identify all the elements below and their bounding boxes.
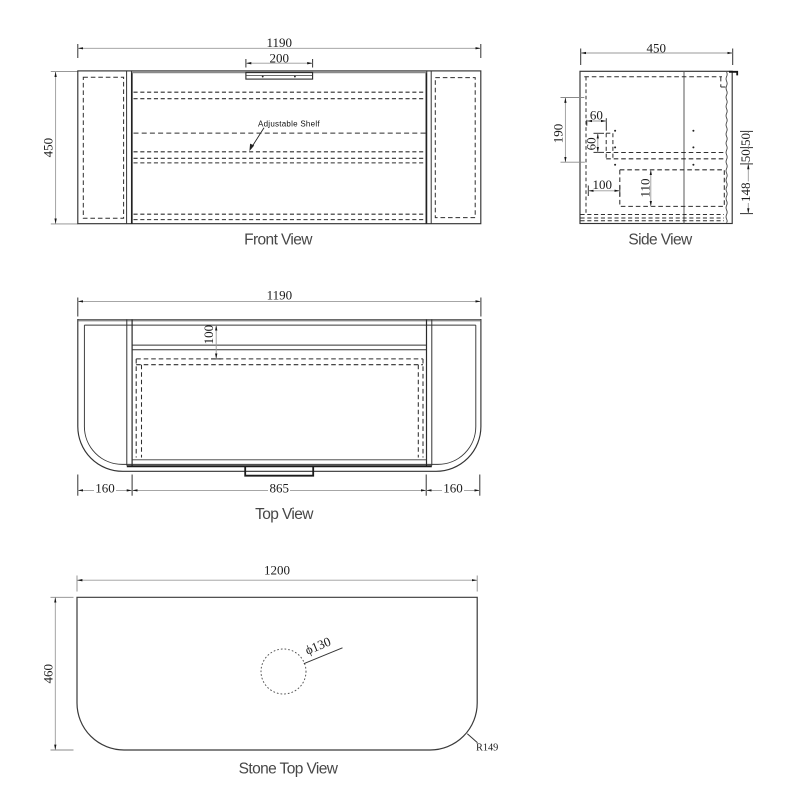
svg-text:60: 60	[590, 107, 603, 122]
svg-text:450: 450	[647, 40, 667, 55]
svg-text:460: 460	[40, 664, 55, 684]
svg-text:Stone Top View: Stone Top View	[239, 761, 339, 778]
svg-text:110: 110	[637, 178, 652, 197]
svg-text:148: 148	[738, 182, 753, 202]
svg-text:450: 450	[41, 138, 56, 158]
svg-text:100: 100	[201, 325, 216, 345]
svg-text:Adjustable Shelf: Adjustable Shelf	[258, 119, 320, 128]
svg-text:Front View: Front View	[244, 231, 313, 248]
svg-text:160: 160	[95, 481, 115, 496]
svg-text:200: 200	[270, 50, 290, 65]
svg-text:865: 865	[269, 481, 289, 496]
svg-text:100: 100	[592, 177, 612, 192]
svg-text:60: 60	[584, 137, 599, 150]
svg-text:50: 50	[738, 149, 753, 162]
svg-text:R149: R149	[476, 742, 498, 753]
svg-text:1190: 1190	[267, 35, 293, 50]
svg-text:Top View: Top View	[255, 506, 314, 523]
svg-text:Side View: Side View	[628, 231, 693, 248]
svg-text:50: 50	[738, 133, 753, 146]
svg-text:1190: 1190	[267, 288, 293, 303]
svg-text:190: 190	[550, 124, 565, 144]
svg-text:160: 160	[443, 481, 463, 496]
svg-text:1200: 1200	[264, 562, 290, 577]
